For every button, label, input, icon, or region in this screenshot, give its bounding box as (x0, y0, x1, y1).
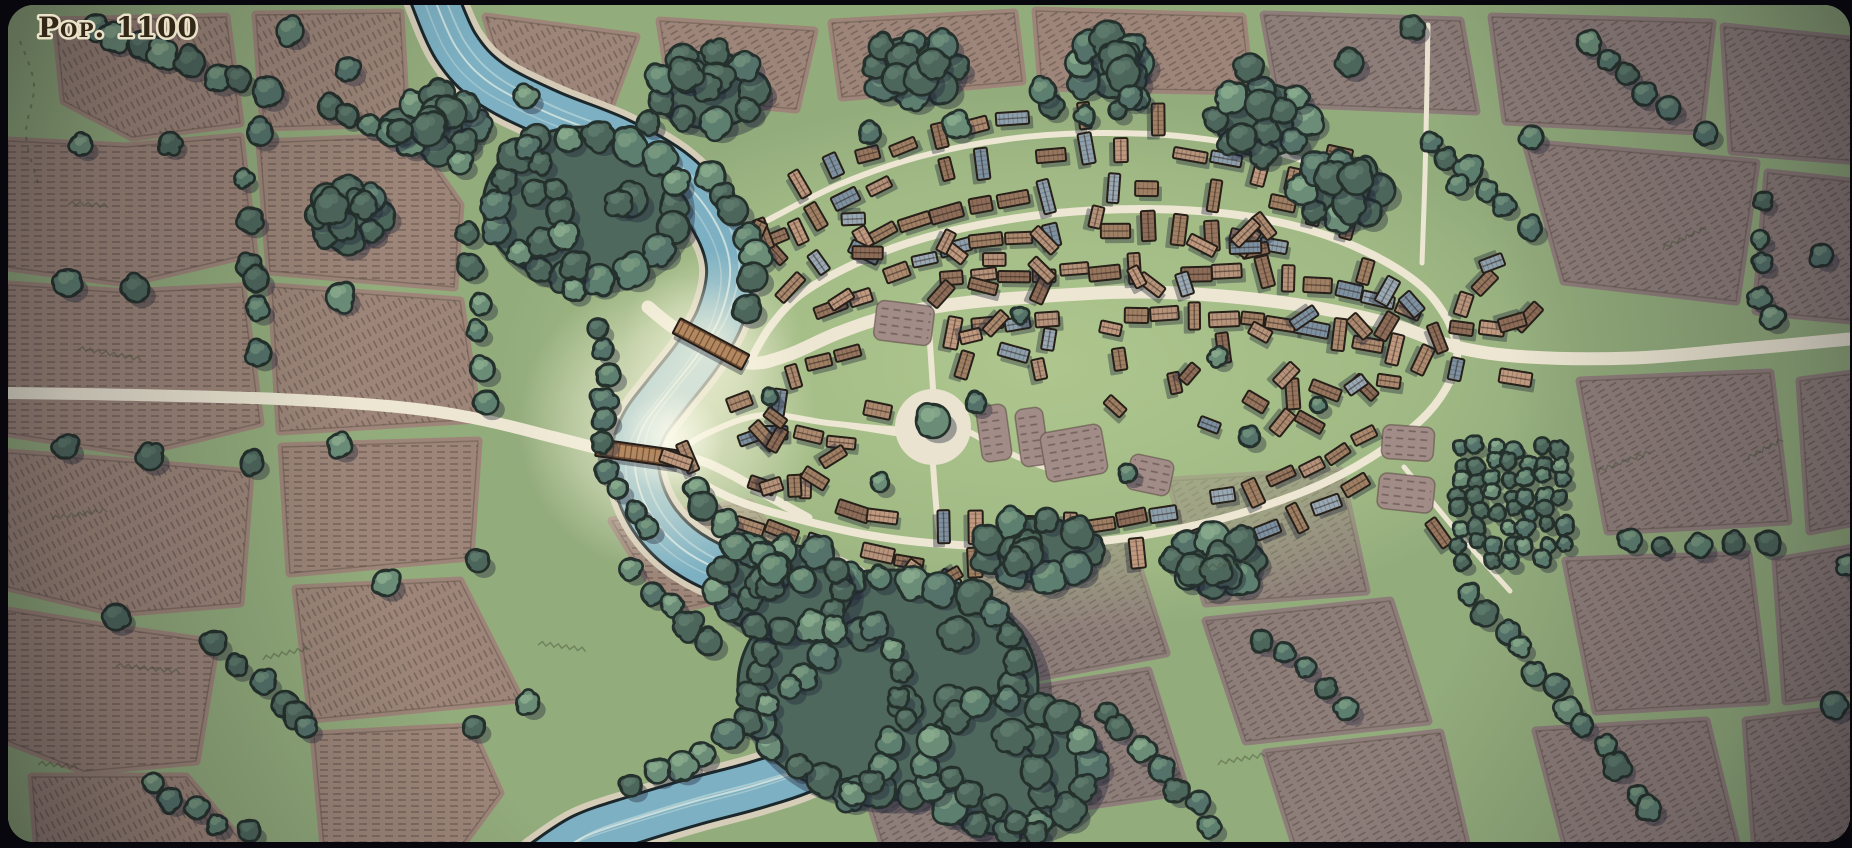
map-frame: Pop. 1100 (0, 0, 1852, 848)
population-label: Pop. 1100 (38, 11, 198, 44)
vignette-overlay (8, 5, 1850, 842)
village-map-canvas[interactable]: Pop. 1100 (8, 5, 1850, 842)
map-viewport[interactable]: Pop. 1100 (8, 5, 1850, 842)
